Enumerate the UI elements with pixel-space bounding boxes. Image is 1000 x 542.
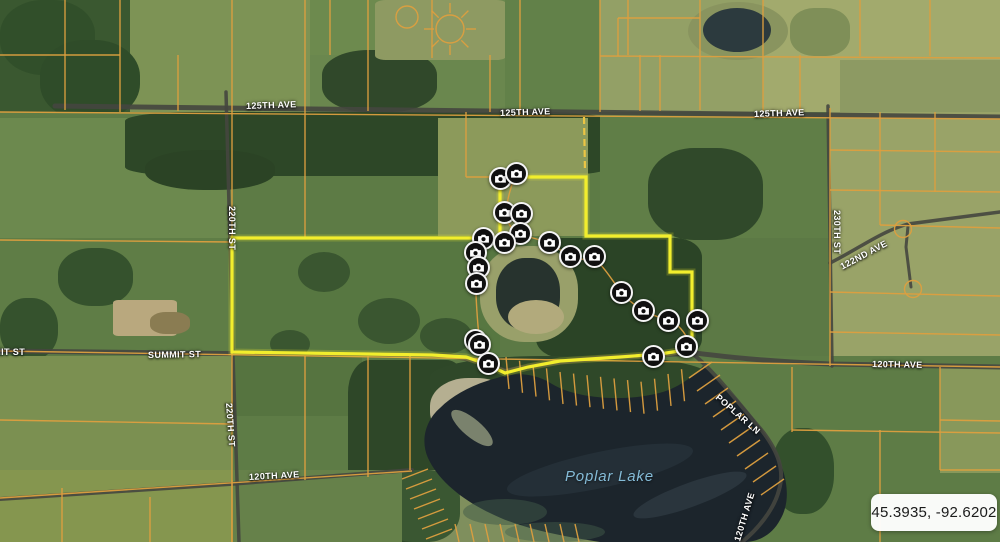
photo-markers-layer bbox=[0, 0, 1000, 542]
photo-marker[interactable] bbox=[465, 272, 488, 295]
photo-marker[interactable] bbox=[632, 299, 655, 322]
photo-marker[interactable] bbox=[642, 345, 665, 368]
photo-marker[interactable] bbox=[675, 335, 698, 358]
photo-marker[interactable] bbox=[538, 231, 561, 254]
photo-marker[interactable] bbox=[583, 245, 606, 268]
photo-marker[interactable] bbox=[493, 231, 516, 254]
coordinate-readout: 45.3935, -92.6202 bbox=[871, 494, 997, 531]
map-canvas[interactable]: 125TH AVE125TH AVE125TH AVESUMMIT STSUMM… bbox=[0, 0, 1000, 542]
photo-marker[interactable] bbox=[686, 309, 709, 332]
photo-marker[interactable] bbox=[477, 352, 500, 375]
lake-label: Poplar Lake bbox=[565, 468, 654, 485]
photo-marker[interactable] bbox=[610, 281, 633, 304]
photo-marker[interactable] bbox=[505, 162, 528, 185]
photo-marker[interactable] bbox=[657, 309, 680, 332]
photo-marker[interactable] bbox=[559, 245, 582, 268]
